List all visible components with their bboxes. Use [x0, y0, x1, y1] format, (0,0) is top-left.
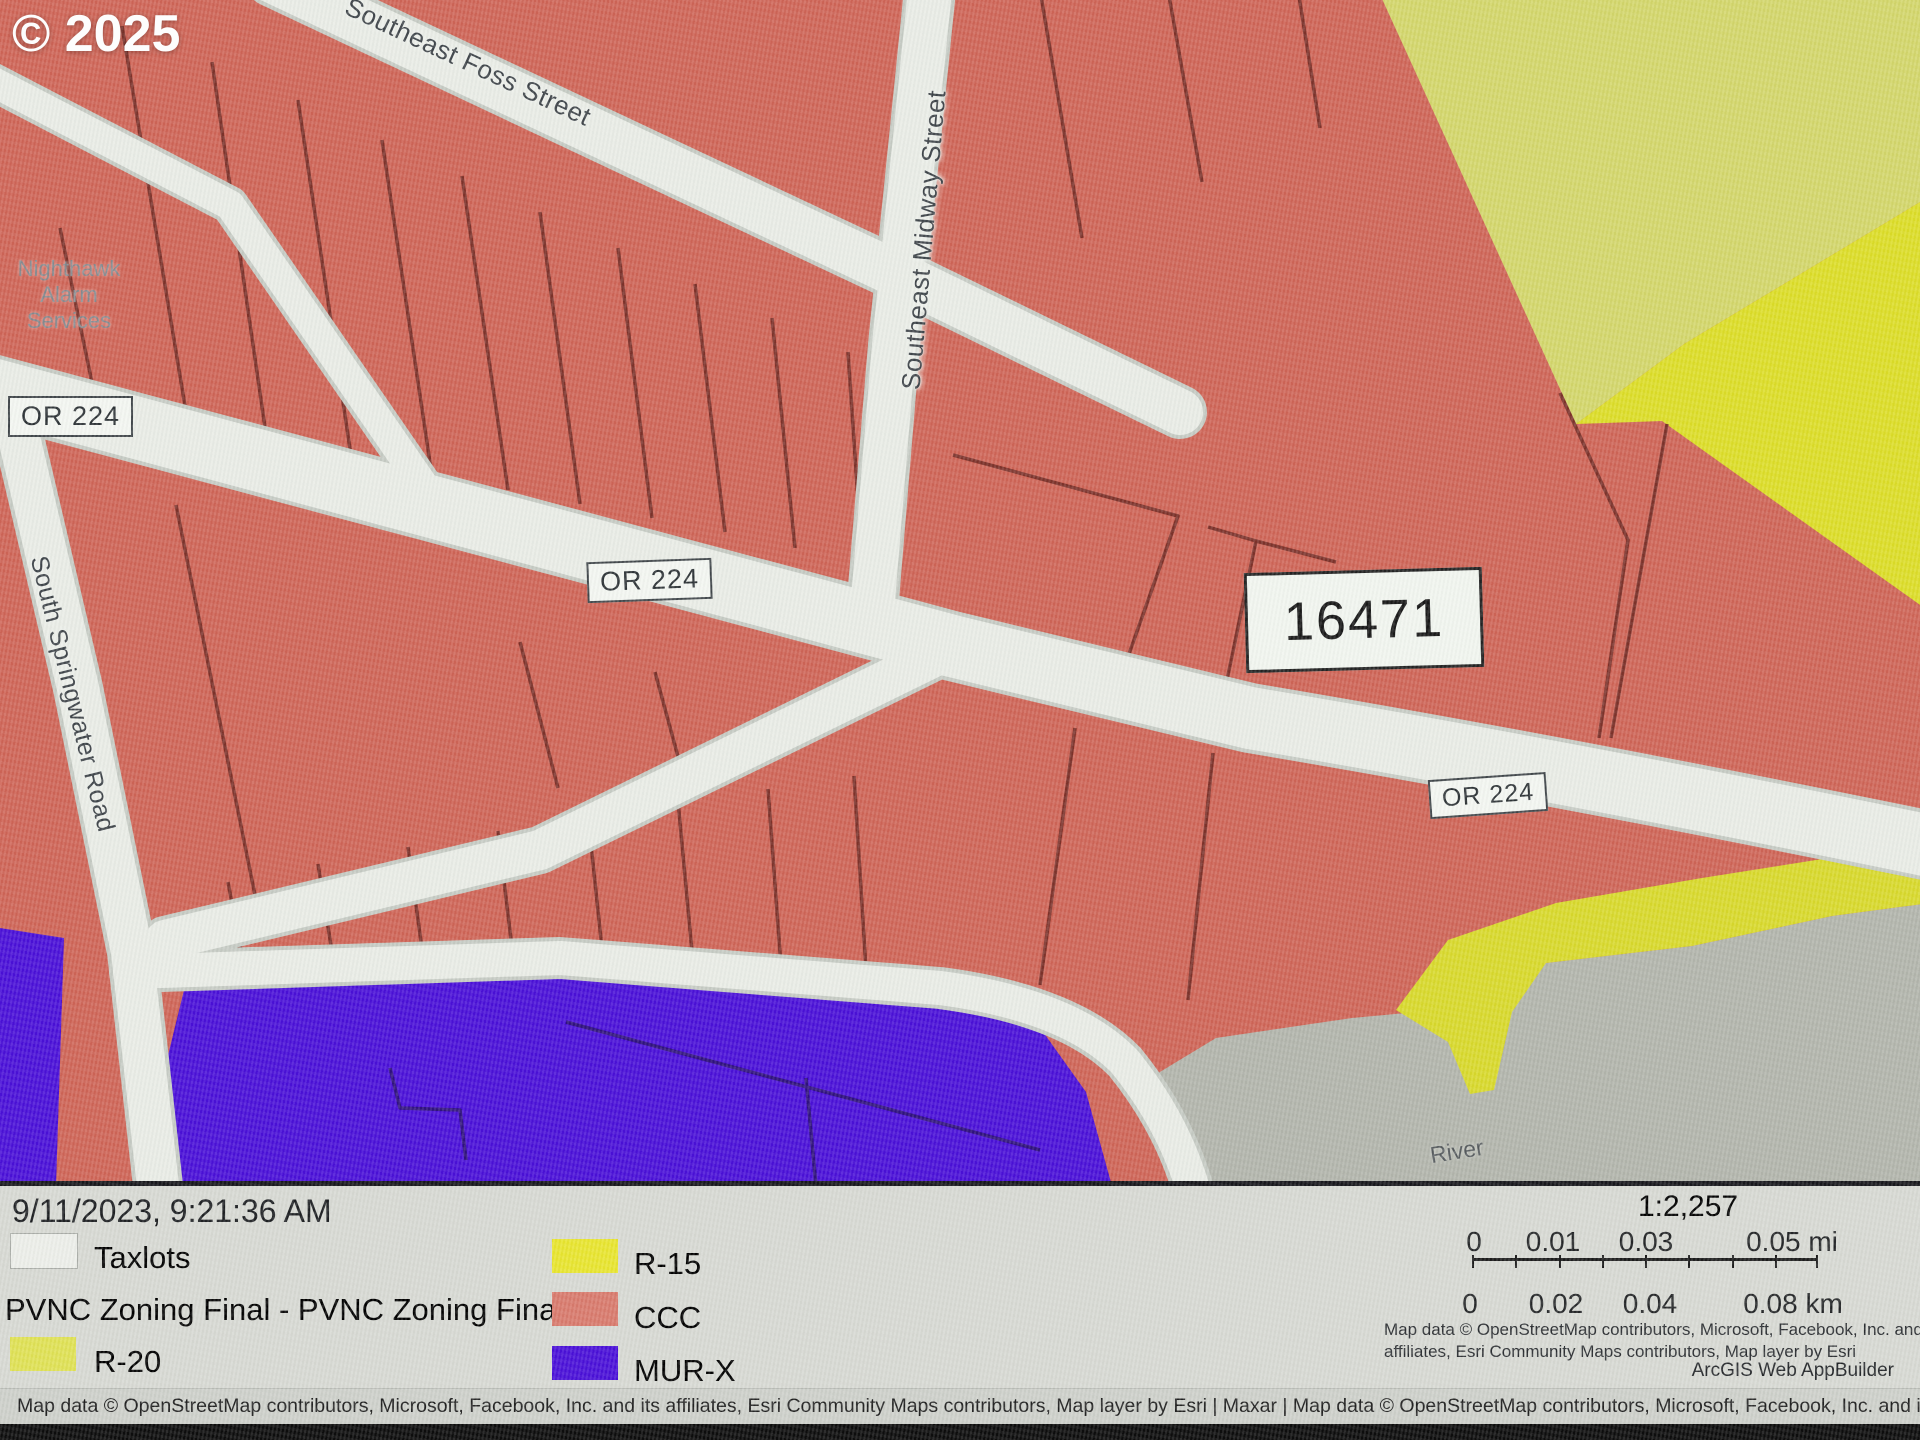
- scale-mi-1: 0.01: [1526, 1226, 1581, 1258]
- bottom-black-bar: [0, 1424, 1920, 1440]
- poi-label-nighthawk: Nighthawk Alarm Services: [0, 256, 144, 334]
- app-screen: Southeast Foss Street Southeast Midway S…: [0, 0, 1920, 1440]
- legend-layer-title: PVNC Zoning Final - PVNC Zoning Final: [5, 1292, 563, 1328]
- route-shield-or224-center: OR 224: [586, 558, 712, 603]
- legend-label-murx: MUR-X: [634, 1353, 736, 1389]
- esri-attribution-line2: affiliates, Esri Community Maps contribu…: [1384, 1342, 1856, 1362]
- scale-ratio: 1:2,257: [1638, 1190, 1738, 1224]
- legend-swatch-taxlots: [10, 1233, 78, 1269]
- legend-label-r20: R-20: [94, 1344, 161, 1380]
- copyright-watermark: © 2025: [12, 4, 180, 64]
- scale-km-1: 0.02: [1529, 1288, 1584, 1320]
- legend-swatch-r15: [552, 1239, 618, 1273]
- scale-km-0: 0: [1462, 1288, 1478, 1320]
- scale-km-3: 0.08 km: [1743, 1288, 1843, 1320]
- scale-km-2: 0.04: [1623, 1288, 1678, 1320]
- bottom-attribution-strip: Map data © OpenStreetMap contributors, M…: [0, 1388, 1920, 1425]
- bottom-attribution-text: Map data © OpenStreetMap contributors, M…: [17, 1395, 1920, 1418]
- route-shield-or224-left: OR 224: [8, 396, 133, 437]
- zone-murx-left: [0, 928, 64, 1186]
- road-foss: [272, 0, 1180, 412]
- legend-label-ccc: CCC: [634, 1300, 701, 1336]
- arcgis-appbuilder-label: ArcGIS Web AppBuilder: [1692, 1360, 1894, 1382]
- poi-line-3: Services: [27, 308, 111, 333]
- poi-line-1: Nighthawk: [18, 256, 121, 281]
- route-shield-or224-right: OR 224: [1428, 772, 1549, 819]
- scale-mi-0: 0: [1466, 1226, 1482, 1258]
- legend-swatch-r20: [10, 1337, 76, 1371]
- map-canvas[interactable]: Southeast Foss Street Southeast Midway S…: [0, 0, 1920, 1186]
- print-timestamp: 9/11/2023, 9:21:36 AM: [12, 1193, 332, 1230]
- legend-label-r15: R-15: [634, 1246, 701, 1282]
- map-graphics: [0, 0, 1920, 1186]
- legend-label-taxlots: Taxlots: [94, 1240, 190, 1276]
- scale-bar: [1472, 1258, 1818, 1275]
- legend-swatch-murx: [552, 1346, 618, 1380]
- scale-mi-3: 0.05 mi: [1746, 1226, 1838, 1258]
- esri-attribution-line1: Map data © OpenStreetMap contributors, M…: [1384, 1320, 1920, 1340]
- legend-swatch-ccc: [552, 1292, 618, 1326]
- parcel-id-callout: 16471: [1244, 567, 1485, 673]
- scale-mi-2: 0.03: [1619, 1226, 1674, 1258]
- road-connector: [165, 650, 948, 940]
- poi-line-2: Alarm: [40, 282, 97, 307]
